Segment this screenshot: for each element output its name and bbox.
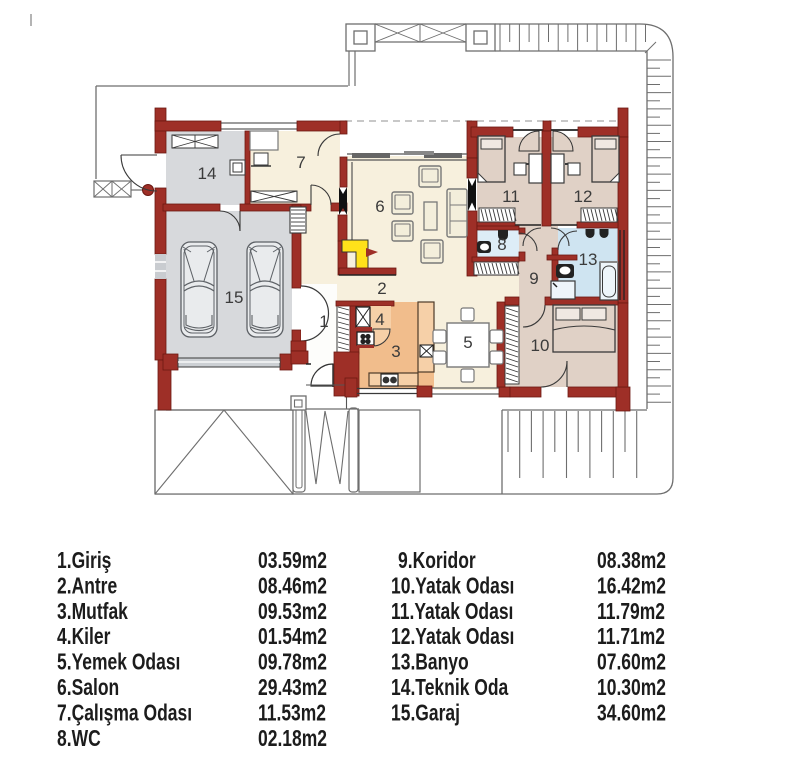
svg-text:34.60m2: 34.60m2 bbox=[597, 699, 666, 725]
svg-text:2: 2 bbox=[377, 279, 386, 298]
svg-text:6.Salon: 6.Salon bbox=[57, 674, 119, 700]
svg-text:03.59m2: 03.59m2 bbox=[258, 547, 327, 573]
svg-text:11.79m2: 11.79m2 bbox=[597, 598, 665, 624]
svg-text:9.Koridor: 9.Koridor bbox=[398, 547, 476, 573]
svg-text:14: 14 bbox=[198, 164, 217, 183]
svg-text:10: 10 bbox=[531, 336, 550, 355]
svg-text:5: 5 bbox=[463, 333, 472, 352]
svg-text:4.Kiler: 4.Kiler bbox=[57, 623, 110, 649]
svg-text:09.53m2: 09.53m2 bbox=[258, 598, 327, 624]
svg-text:29.43m2: 29.43m2 bbox=[258, 674, 327, 700]
svg-text:07.60m2: 07.60m2 bbox=[597, 649, 666, 675]
svg-text:16.42m2: 16.42m2 bbox=[597, 572, 666, 598]
svg-text:11.71m2: 11.71m2 bbox=[597, 623, 665, 649]
svg-text:7: 7 bbox=[296, 153, 305, 172]
svg-text:15.Garaj: 15.Garaj bbox=[391, 699, 460, 725]
svg-text:14.Teknik Oda: 14.Teknik Oda bbox=[391, 674, 508, 700]
svg-text:08.46m2: 08.46m2 bbox=[258, 572, 327, 598]
svg-text:3: 3 bbox=[391, 342, 400, 361]
svg-text:13.Banyo: 13.Banyo bbox=[391, 649, 469, 675]
svg-text:09.78m2: 09.78m2 bbox=[258, 649, 327, 675]
svg-text:15: 15 bbox=[225, 288, 244, 307]
svg-text:9: 9 bbox=[529, 269, 538, 288]
svg-text:12: 12 bbox=[574, 187, 593, 206]
svg-text:10.30m2: 10.30m2 bbox=[597, 674, 666, 700]
svg-text:8.WC: 8.WC bbox=[57, 725, 101, 751]
svg-text:1.Giriş: 1.Giriş bbox=[57, 547, 111, 573]
svg-text:01.54m2: 01.54m2 bbox=[258, 623, 327, 649]
svg-text:6: 6 bbox=[375, 197, 384, 216]
svg-text:11.Yatak Odası: 11.Yatak Odası bbox=[391, 598, 513, 624]
svg-text:4: 4 bbox=[375, 310, 384, 329]
svg-text:11.53m2: 11.53m2 bbox=[258, 699, 326, 725]
svg-text:12.Yatak Odası: 12.Yatak Odası bbox=[391, 623, 514, 649]
svg-text:7.Çalışma Odası: 7.Çalışma Odası bbox=[57, 699, 192, 725]
svg-text:8: 8 bbox=[497, 235, 506, 254]
svg-text:2.Antre: 2.Antre bbox=[57, 572, 117, 598]
svg-text:3.Mutfak: 3.Mutfak bbox=[57, 598, 128, 624]
svg-text:11: 11 bbox=[502, 187, 520, 206]
svg-text:1: 1 bbox=[319, 312, 328, 331]
svg-text:5.Yemek Odası: 5.Yemek Odası bbox=[57, 649, 180, 675]
svg-text:13: 13 bbox=[579, 250, 598, 269]
svg-text:02.18m2: 02.18m2 bbox=[258, 725, 327, 751]
svg-text:08.38m2: 08.38m2 bbox=[597, 547, 666, 573]
svg-text:10.Yatak Odası: 10.Yatak Odası bbox=[391, 572, 514, 598]
